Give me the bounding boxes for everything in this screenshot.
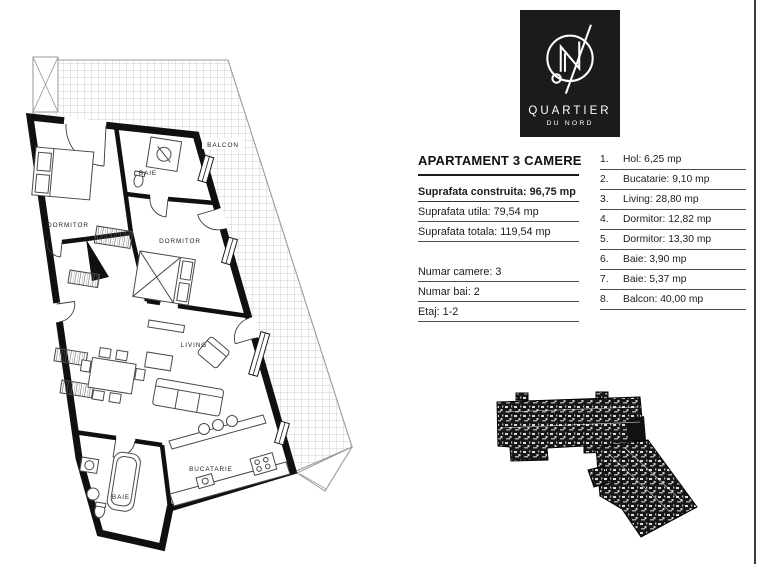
room-label-dormitor-2: DORMITOR — [159, 238, 201, 245]
room-label-baie-1: BAIE — [139, 170, 157, 177]
room-label-living: LIVING — [181, 342, 207, 349]
spec-suprafata-construita: Suprafata construita: 96,75 mp — [418, 182, 579, 202]
room-list-item: 7. Baie: 5,37 mp — [600, 270, 746, 290]
building-key-plan — [497, 392, 697, 537]
washer — [80, 457, 99, 473]
room-list-item: 4. Dormitor: 12,82 mp — [600, 210, 746, 230]
room-label-dormitor-1: DORMITOR — [47, 222, 89, 229]
page-title: APARTAMENT 3 CAMERE — [418, 153, 579, 176]
spec-suprafata-utila: Suprafata utila: 79,54 mp — [418, 202, 579, 222]
bed-1 — [32, 147, 94, 200]
brand-subtitle: du NORD — [546, 120, 593, 127]
spec-numar-camere: Numar camere: 3 — [418, 262, 579, 282]
room-label-balcon: BALCON — [207, 142, 239, 149]
spec-etaj: Etaj: 1-2 — [418, 302, 579, 322]
room-list-item: 1. Hol: 6,25 mp — [600, 150, 746, 170]
room-list-item: 6. Baie: 3,90 mp — [600, 250, 746, 270]
room-list-item: 8. Balcon: 40,00 mp — [600, 290, 746, 310]
room-label-baie-2: BAIE — [112, 494, 130, 501]
plot-corner-marker-top-left — [33, 57, 58, 112]
brand-logo: QUARTIER du NORD — [520, 10, 620, 137]
apartment-details-panel: APARTAMENT 3 CAMERE Suprafata construita… — [418, 153, 579, 322]
room-list-item: 2. Bucatarie: 9,10 mp — [600, 170, 746, 190]
room-areas-list: 1. Hol: 6,25 mp 2. Bucatarie: 9,10 mp 3.… — [600, 150, 746, 310]
shower — [146, 137, 181, 171]
room-list-item: 3. Living: 28,80 mp — [600, 190, 746, 210]
spec-suprafata-totala: Suprafata totala: 119,54 mp — [418, 222, 579, 242]
room-label-bucatarie: BUCATARIE — [189, 466, 233, 473]
bath-sink — [87, 488, 99, 500]
quartier-monogram-icon — [528, 16, 612, 104]
page-edge-divider — [754, 0, 756, 564]
brand-name: QUARTIER — [528, 105, 611, 117]
room-list-item: 5. Dormitor: 13,30 mp — [600, 230, 746, 250]
bed-2 — [133, 251, 196, 305]
apartment-datasheet-page: BALCON DORMITOR BAIE DORMITOR LIVING BUC… — [0, 0, 758, 564]
spec-numar-bai: Numar bai: 2 — [418, 282, 579, 302]
